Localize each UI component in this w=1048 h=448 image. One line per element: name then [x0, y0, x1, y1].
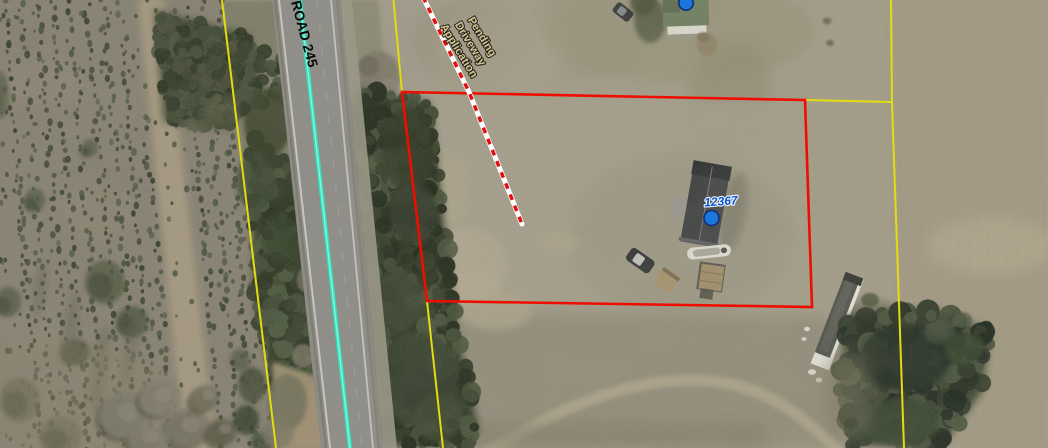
svg-text:12367: 12367 — [704, 193, 740, 209]
